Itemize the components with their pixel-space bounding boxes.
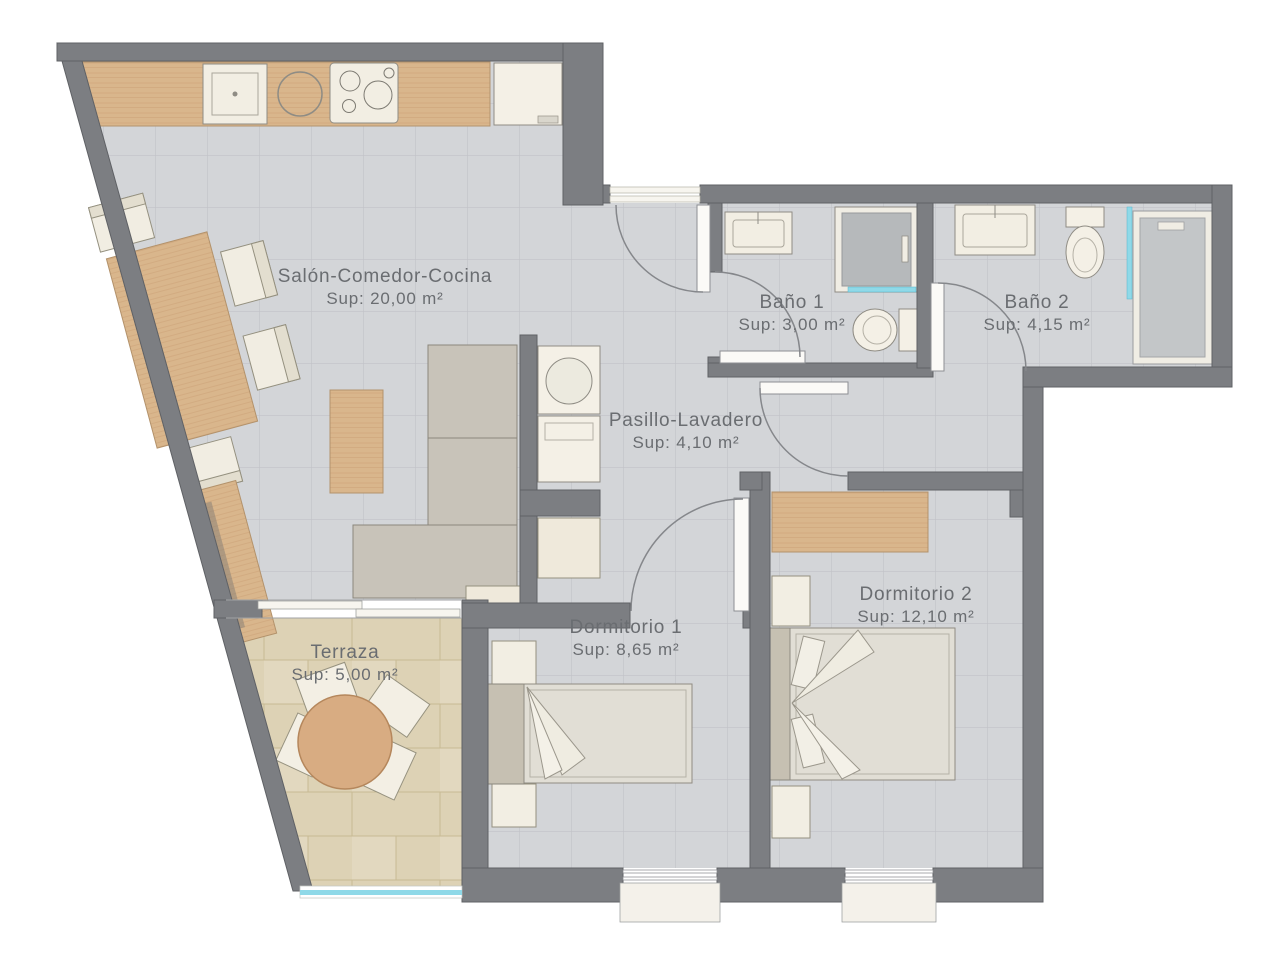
wall-bedroom1-top xyxy=(462,603,630,628)
wall-salon-right xyxy=(563,43,603,205)
nightstand xyxy=(492,784,536,827)
window-bedroom2 xyxy=(842,870,936,922)
washing-machine-icon xyxy=(538,346,600,414)
wall-baths-top xyxy=(700,185,1232,203)
wall-bath1-bottom xyxy=(708,363,933,377)
wall-bedroom2-right xyxy=(1023,387,1043,902)
nightstand xyxy=(772,786,810,838)
toilet-icon xyxy=(853,309,917,351)
toilet-icon xyxy=(1066,207,1104,278)
sink-icon xyxy=(955,205,1035,255)
coffee-table xyxy=(330,390,383,493)
wall-bedroom2-top xyxy=(848,472,1023,490)
wall-top xyxy=(57,43,603,61)
wall-terrace-bedroom1 xyxy=(462,600,488,868)
single-bed xyxy=(488,684,692,784)
wall-laundry-stub xyxy=(520,490,600,516)
laundry-unit xyxy=(538,416,600,482)
kitchen-counter xyxy=(77,62,562,126)
nightstand xyxy=(492,641,536,684)
wall-bedrooms-divider xyxy=(750,472,770,868)
floor-plan-svg xyxy=(0,0,1280,960)
entrance-threshold xyxy=(610,187,700,202)
bath2-glass xyxy=(1127,207,1132,299)
double-bed xyxy=(770,628,955,780)
sink-icon xyxy=(725,212,792,254)
window-bedroom1 xyxy=(620,870,720,922)
wall-hall-west xyxy=(520,335,537,628)
wall-step xyxy=(1023,367,1232,387)
wall-right xyxy=(1212,185,1232,387)
floor-plan-page: Salón-Comedor-Cocina Sup: 20,00 m² Baño … xyxy=(0,0,1280,960)
nightstand xyxy=(772,576,810,626)
shower-glass xyxy=(848,287,916,292)
terrace-railing-glass xyxy=(300,890,462,895)
fridge-icon xyxy=(494,63,562,125)
bathtub-icon xyxy=(1133,211,1212,364)
shower-icon xyxy=(835,207,918,292)
kitchen-sink-icon xyxy=(203,64,267,124)
dresser xyxy=(772,492,928,552)
wall-bottom xyxy=(462,868,623,902)
hall-closet xyxy=(538,518,600,578)
cooktop-icon xyxy=(330,63,398,123)
terrace-table xyxy=(298,695,392,789)
